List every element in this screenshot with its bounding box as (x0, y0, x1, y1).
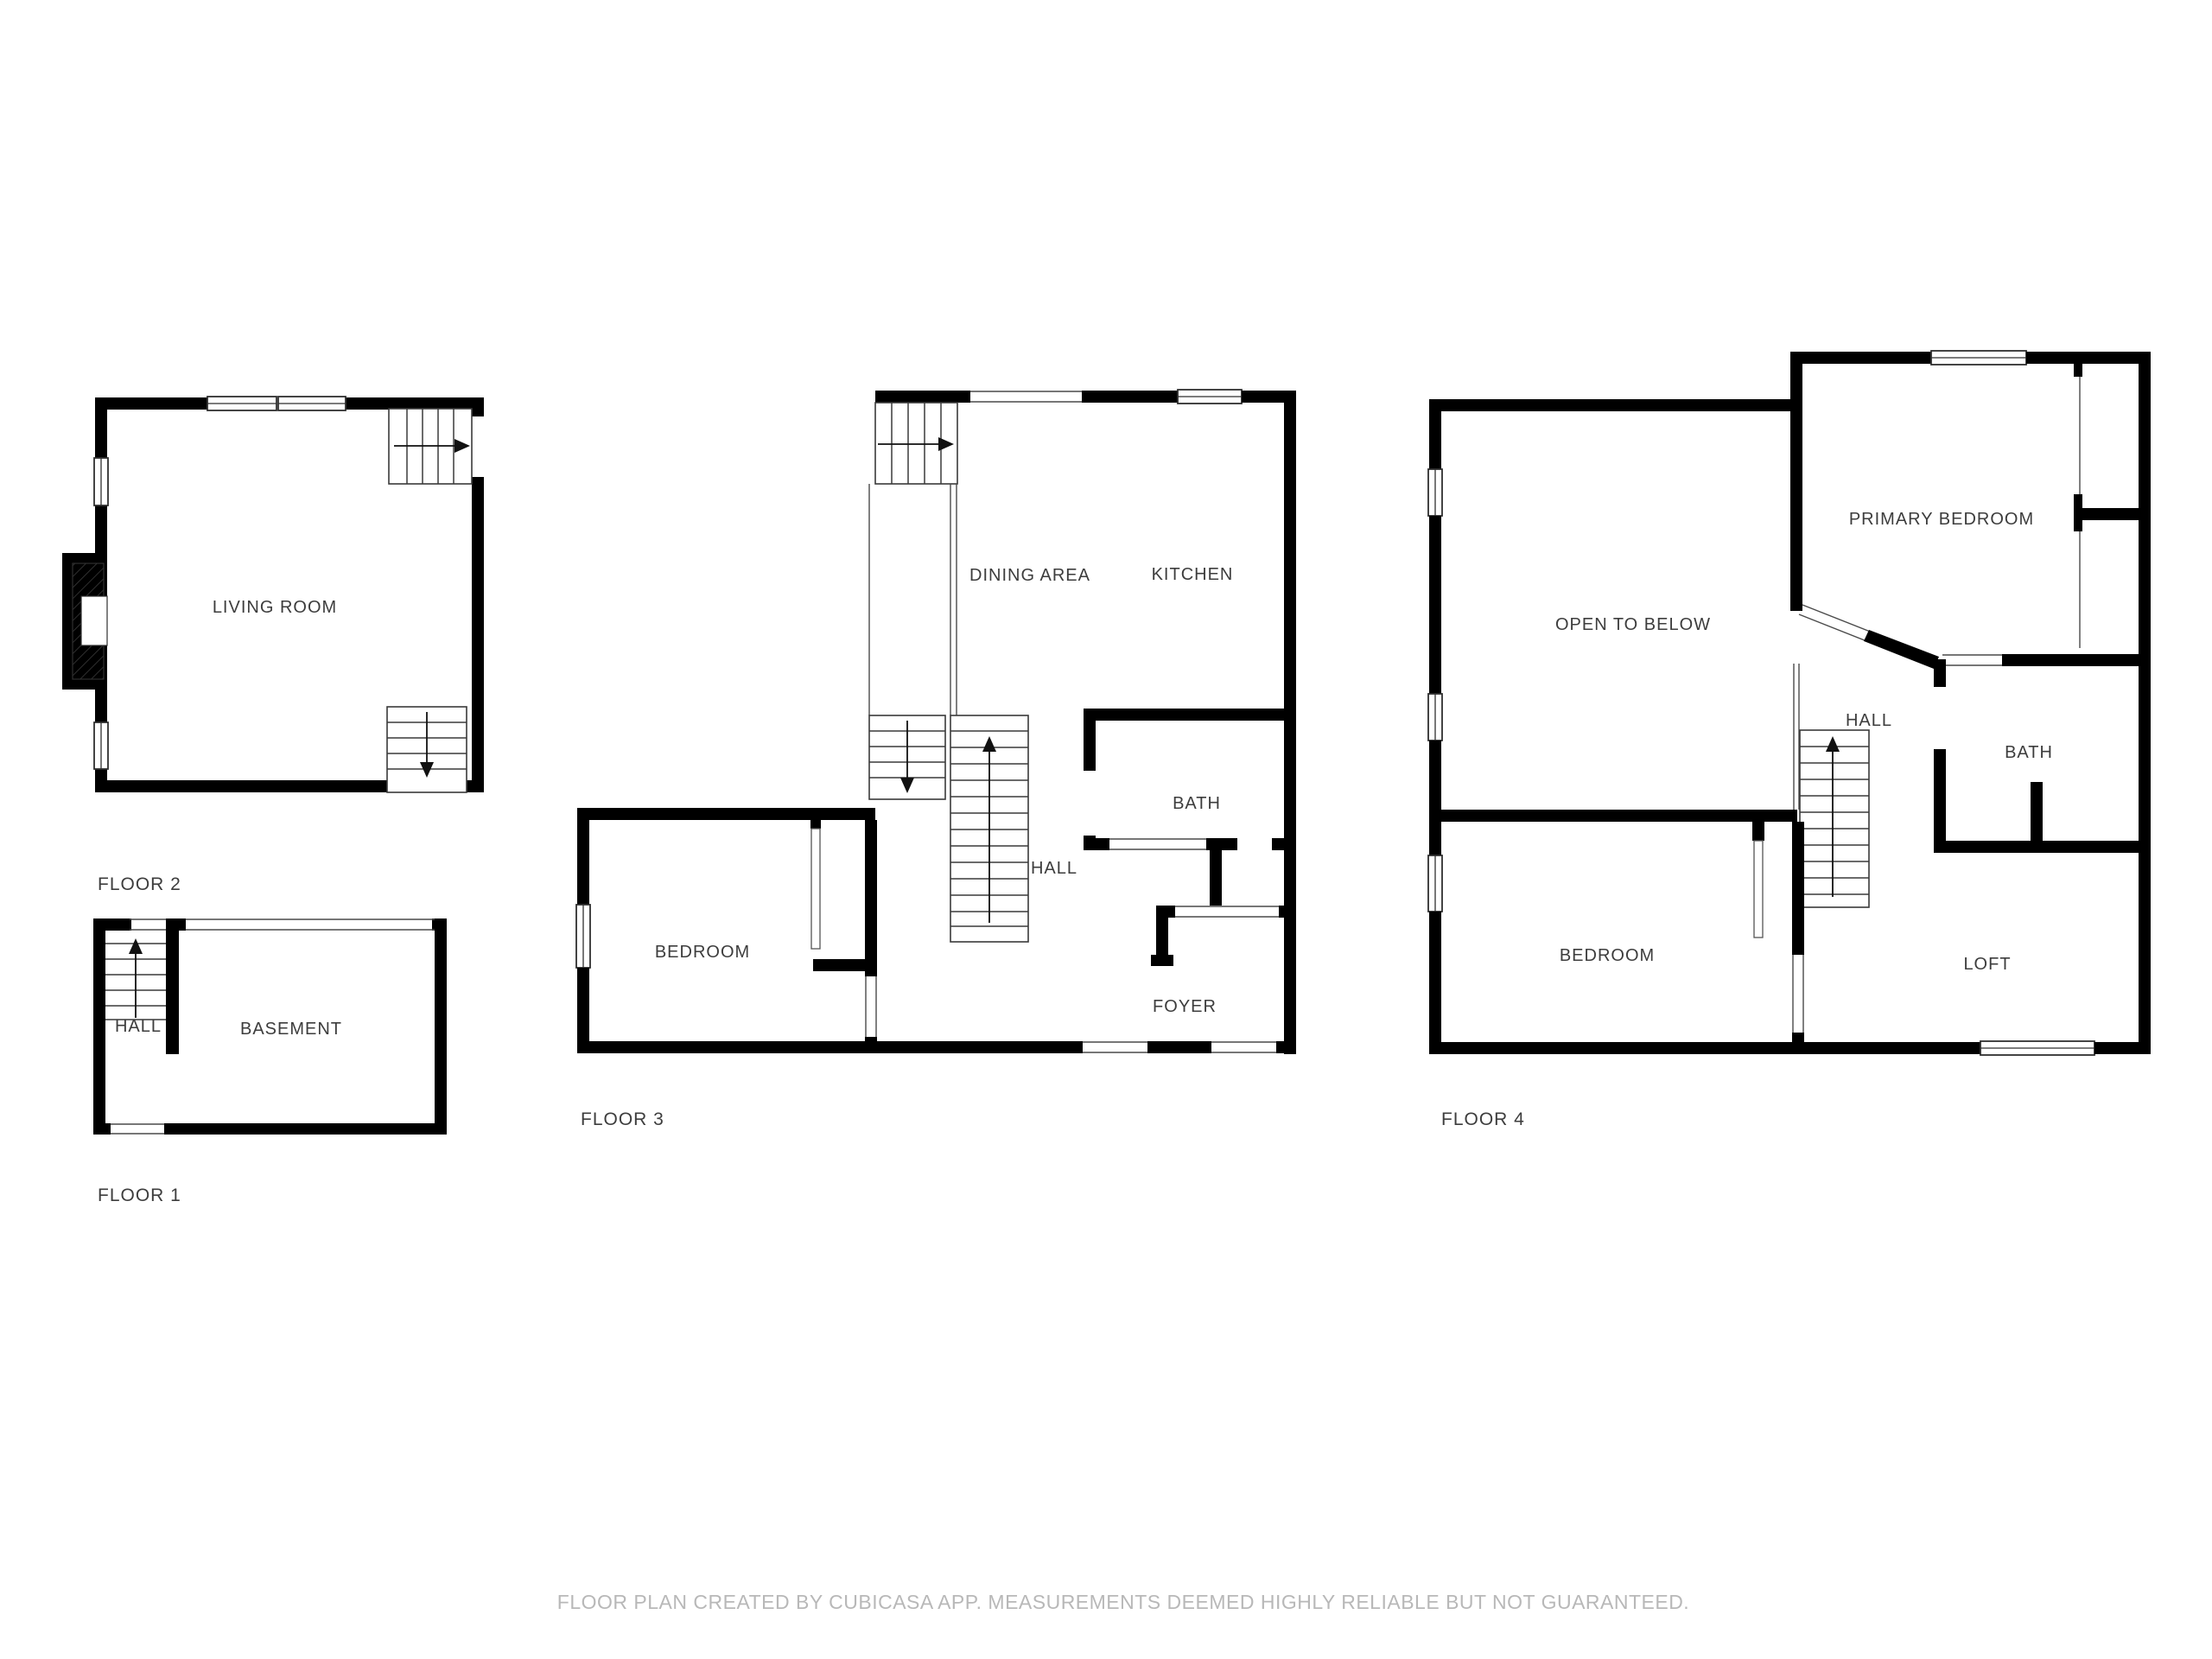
window (1428, 469, 1442, 516)
fireplace (62, 553, 107, 690)
window (207, 397, 346, 410)
floor-plan-sheet: LIVING ROOM FLOOR 2 (0, 0, 2212, 1659)
angled-wall (1799, 605, 1939, 669)
floor-4-title: FLOOR 4 (1441, 1109, 1525, 1129)
floor-3-title: FLOOR 3 (581, 1109, 664, 1129)
window (1931, 351, 2026, 365)
staircase (389, 409, 472, 484)
floor-4-plan: OPEN TO BELOW PRIMARY BEDROOM HALL BATH … (1428, 351, 2151, 1129)
room-label-basement: BASEMENT (240, 1020, 342, 1039)
room-label-open-to-below: OPEN TO BELOW (1555, 615, 1711, 634)
floor-3-plan: DINING AREA KITCHEN BEDROOM BATH HALL FO… (576, 390, 1296, 1129)
room-label-bedroom: BEDROOM (1560, 946, 1655, 965)
room-label-hall: HALL (1846, 711, 1892, 730)
window (1428, 694, 1442, 741)
staircase (105, 938, 166, 1020)
staircase (875, 403, 957, 484)
window (576, 905, 590, 968)
window (1980, 1041, 2094, 1055)
window (1178, 390, 1242, 404)
staircase (1800, 730, 1869, 907)
staircase (869, 715, 945, 799)
room-label-living-room: LIVING ROOM (213, 598, 337, 617)
floor-1-title: FLOOR 1 (98, 1185, 181, 1205)
floor-2-title: FLOOR 2 (98, 874, 181, 894)
closet (2074, 364, 2139, 648)
room-label-kitchen: KITCHEN (1152, 565, 1234, 584)
staircase (950, 715, 1028, 942)
stairwell-railing (1794, 664, 1799, 810)
room-label-bath: BATH (2005, 743, 2053, 762)
room-label-hall: HALL (115, 1017, 162, 1036)
room-label-bedroom: BEDROOM (655, 943, 750, 962)
window (1428, 855, 1442, 912)
room-label-hall: HALL (1031, 859, 1077, 878)
room-label-primary-bedroom: PRIMARY BEDROOM (1849, 510, 2034, 529)
door-leaf (1754, 841, 1763, 938)
floor-1-plan: HALL BASEMENT FLOOR 1 (93, 918, 447, 1205)
room-label-foyer: FOYER (1153, 997, 1217, 1016)
door-leaf (811, 829, 820, 949)
stairwell-railing (869, 484, 957, 715)
room-label-loft: LOFT (1963, 955, 2011, 974)
floor-2-plan: LIVING ROOM FLOOR 2 (62, 397, 484, 894)
room-label-bath: BATH (1173, 794, 1221, 813)
floor-plan-canvas: LIVING ROOM FLOOR 2 (0, 0, 2212, 1659)
room-label-dining-area: DINING AREA (969, 566, 1090, 585)
staircase (387, 707, 467, 792)
disclaimer-text: FLOOR PLAN CREATED BY CUBICASA APP. MEAS… (557, 1591, 1689, 1613)
